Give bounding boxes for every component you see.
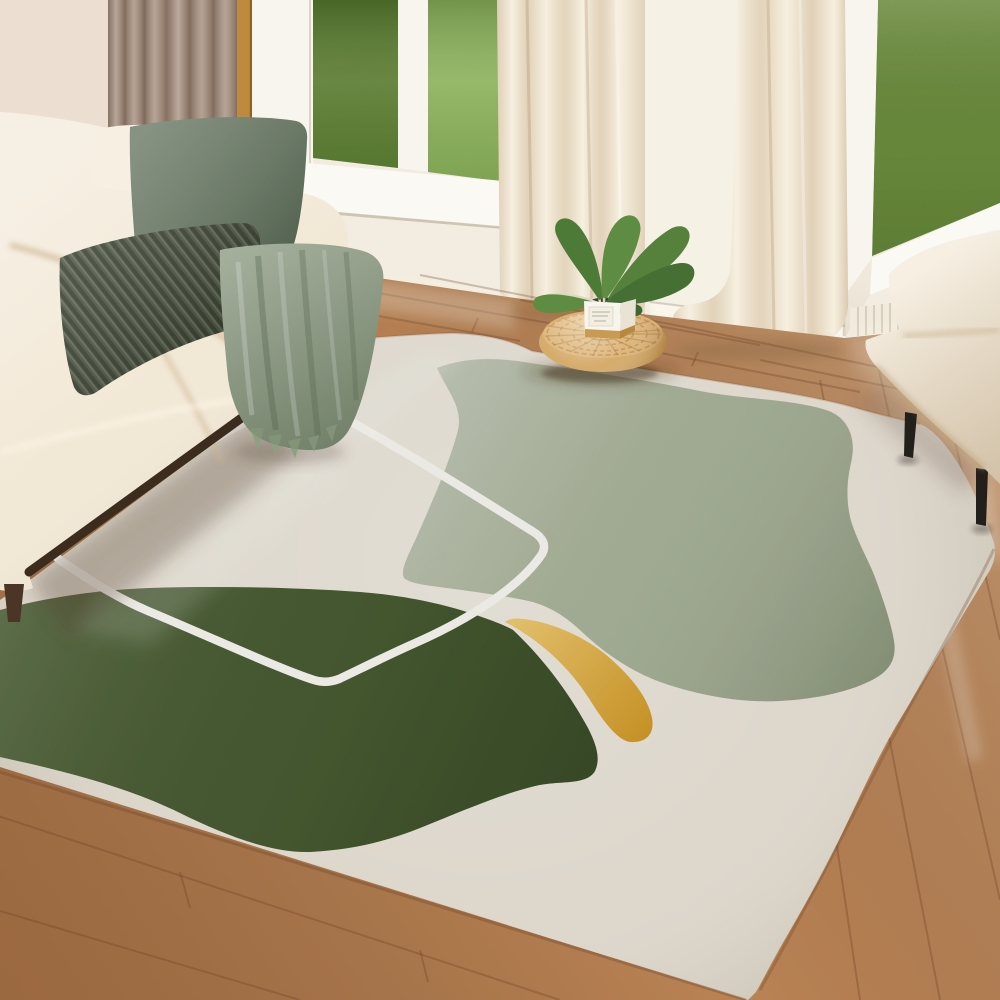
cream-curtain-left-group (497, 0, 650, 315)
pot-label (589, 307, 613, 326)
living-room-rug-photo (0, 0, 1000, 1000)
grass-pane-1-texture (313, 0, 398, 168)
chair-leg-shadow (898, 456, 918, 464)
chair-leg-shadow (972, 525, 992, 533)
cream-curtain-left-folds (497, 0, 650, 315)
window-mullion (398, 0, 428, 172)
curtain-hem-shadow (675, 341, 845, 359)
chair-leg-back (976, 468, 988, 526)
